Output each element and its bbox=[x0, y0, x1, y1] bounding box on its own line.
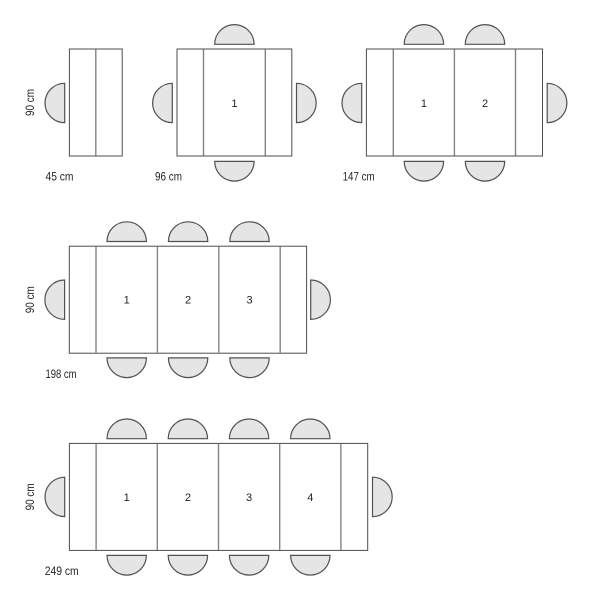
svg-text:3: 3 bbox=[246, 492, 252, 504]
svg-text:1: 1 bbox=[124, 492, 130, 504]
svg-text:2: 2 bbox=[185, 295, 191, 307]
svg-text:1: 1 bbox=[124, 295, 130, 307]
svg-text:45 cm: 45 cm bbox=[46, 172, 74, 184]
svg-text:90 cm: 90 cm bbox=[25, 286, 37, 313]
svg-text:96 cm: 96 cm bbox=[155, 172, 182, 184]
svg-text:90 cm: 90 cm bbox=[25, 89, 37, 116]
svg-text:249 cm: 249 cm bbox=[45, 566, 79, 578]
svg-text:1: 1 bbox=[421, 98, 427, 110]
svg-text:90 cm: 90 cm bbox=[25, 483, 37, 510]
svg-text:147 cm: 147 cm bbox=[343, 172, 375, 184]
svg-text:4: 4 bbox=[307, 492, 313, 504]
svg-text:198 cm: 198 cm bbox=[46, 369, 77, 381]
svg-text:1: 1 bbox=[231, 98, 237, 110]
svg-text:2: 2 bbox=[185, 492, 191, 504]
svg-text:2: 2 bbox=[482, 98, 488, 110]
svg-text:3: 3 bbox=[246, 295, 252, 307]
